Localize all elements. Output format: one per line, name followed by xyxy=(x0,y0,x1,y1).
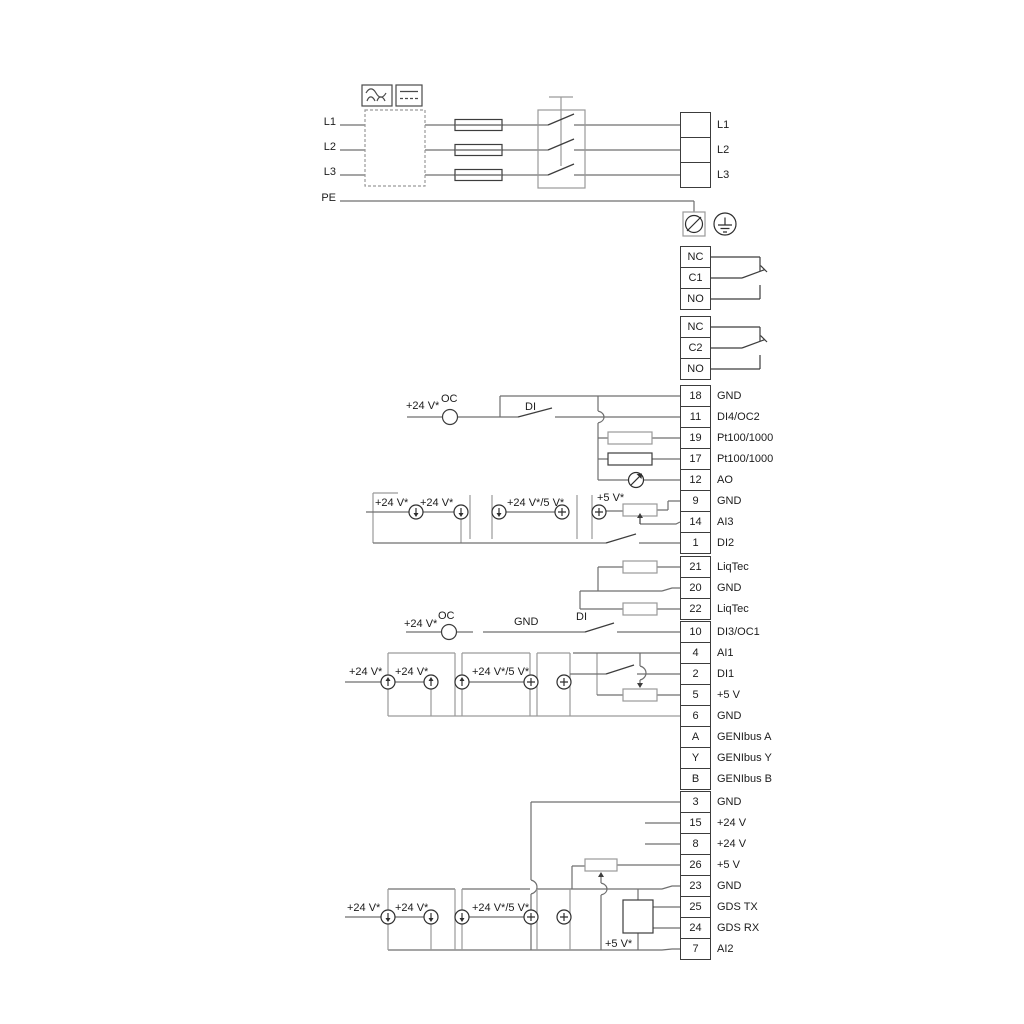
io3-label: AI2 xyxy=(717,943,734,955)
v24-annotation: +24 V* xyxy=(404,618,437,630)
v24-5-annotation: +24 V*/5 V* xyxy=(472,902,529,914)
io1-wiring xyxy=(407,396,680,480)
mains-out-l2-label: L2 xyxy=(717,144,729,156)
v24-annotation: +24 V* xyxy=(406,400,439,412)
terminal-cell: 18 xyxy=(680,385,711,407)
terminal-cell: 22 xyxy=(680,598,711,620)
v24-annotation: +24 V* xyxy=(395,666,428,678)
io3-label: +24 V xyxy=(717,838,746,850)
earth-ground-icon xyxy=(714,213,736,235)
voltage-source-plus-icons-ai1 xyxy=(524,675,571,689)
mains-out-l1-label: L1 xyxy=(717,119,729,131)
pe-screw-terminal xyxy=(683,212,705,236)
io1-label: AI3 xyxy=(717,516,734,528)
io3-label: GDS TX xyxy=(717,901,758,913)
io2-label: GENIbus Y xyxy=(717,752,772,764)
terminal-cell xyxy=(680,137,711,163)
ai3-potentiometer-icon xyxy=(623,504,657,524)
terminal-cell: 23 xyxy=(680,875,711,897)
mains-out-l3-label: L3 xyxy=(717,169,729,181)
terminal-cell: 8 xyxy=(680,833,711,855)
mains-in-l1-label: L1 xyxy=(314,116,336,128)
io1-terminal-block: 18 11 19 17 12 9 14 1 xyxy=(680,385,711,554)
mains-in-pe-label: PE xyxy=(314,192,336,204)
emc-filter-box xyxy=(365,110,425,186)
terminal-cell: 12 xyxy=(680,469,711,491)
v5-annotation: +5 V* xyxy=(597,492,624,504)
terminal-cell: 24 xyxy=(680,917,711,939)
terminal-cell: 15 xyxy=(680,812,711,834)
io3-label: GDS RX xyxy=(717,922,759,934)
v24-5-annotation: +24 V*/5 V* xyxy=(472,666,529,678)
terminal-cell: B xyxy=(680,768,711,790)
v24-annotation: +24 V* xyxy=(347,902,380,914)
io2-terminal-block: 10 4 2 5 6 A Y B xyxy=(680,621,711,790)
io1-label: GND xyxy=(717,495,741,507)
io2-label: DI3/OC1 xyxy=(717,626,760,638)
terminal-cell: 7 xyxy=(680,938,711,960)
wiring-diagram: L1 L2 L3 PE L1 L2 L3 NC C1 NO NC C2 NO 1… xyxy=(0,0,1024,1024)
ai1-potentiometer-icon xyxy=(623,683,657,701)
v5-annotation: +5 V* xyxy=(605,938,632,950)
terminal-cell: NC xyxy=(680,246,711,268)
liqtec-label: GND xyxy=(717,582,741,594)
io1-label: Pt100/1000 xyxy=(717,453,773,465)
io1-label: DI4/OC2 xyxy=(717,411,760,423)
relay2-contact xyxy=(711,327,767,369)
mains-in-l2-label: L2 xyxy=(314,141,336,153)
terminal-cell xyxy=(680,112,711,138)
io2-label: DI1 xyxy=(717,668,734,680)
io1-label: DI2 xyxy=(717,537,734,549)
dc-icon xyxy=(396,85,422,106)
io2-label: +5 V xyxy=(717,689,740,701)
io1-label: GND xyxy=(717,390,741,402)
terminal-cell: Y xyxy=(680,747,711,769)
relay1-terminal-block: NC C1 NO xyxy=(680,246,711,310)
v24-annotation: +24 V* xyxy=(375,497,408,509)
fuse-symbols xyxy=(455,120,502,181)
mains-in-l3-label: L3 xyxy=(314,166,336,178)
io2-label: GND xyxy=(717,710,741,722)
terminal-cell: 25 xyxy=(680,896,711,918)
io3-label: GND xyxy=(717,880,741,892)
terminal-cell: A xyxy=(680,726,711,748)
liqtec-sensor-icons xyxy=(623,561,657,615)
di-annotation: DI xyxy=(576,611,587,623)
terminal-cell: 5 xyxy=(680,684,711,706)
terminal-cell: 11 xyxy=(680,406,711,428)
io3-label: GND xyxy=(717,796,741,808)
diagram-geometry xyxy=(0,0,1024,1024)
io2-label: GENIbus B xyxy=(717,773,772,785)
relay2-terminal-block: NC C2 NO xyxy=(680,316,711,380)
terminal-cell: C2 xyxy=(680,337,711,359)
gds-sensor-box xyxy=(623,900,653,933)
analog-output-meter-icon xyxy=(629,473,644,488)
relay1-contact xyxy=(711,257,767,299)
terminal-cell: 14 xyxy=(680,511,711,533)
terminal-cell: 17 xyxy=(680,448,711,470)
terminal-cell: NC xyxy=(680,316,711,338)
main-switch xyxy=(538,97,585,188)
ai2-cluster xyxy=(388,889,570,950)
liqtec-label: LiqTec xyxy=(717,603,749,615)
oc1-circle-icon xyxy=(442,625,457,640)
ac-icon xyxy=(362,85,392,106)
liqtec-label: LiqTec xyxy=(717,561,749,573)
di-annotation: DI xyxy=(525,401,536,413)
v24-5-annotation: +24 V*/5 V* xyxy=(507,497,564,509)
io3-label: +24 V xyxy=(717,817,746,829)
mains-out-terminal-block xyxy=(680,112,711,188)
pt100-resistor-icons xyxy=(608,432,652,465)
voltage-source-plus-icons-ai2 xyxy=(524,910,571,924)
v24-annotation: +24 V* xyxy=(395,902,428,914)
mains-section xyxy=(340,125,694,212)
ai2-potentiometer-icon xyxy=(585,859,617,877)
terminal-cell: NO xyxy=(680,358,711,380)
terminal-cell: 1 xyxy=(680,532,711,554)
terminal-cell: 21 xyxy=(680,556,711,578)
terminal-cell: 4 xyxy=(680,642,711,664)
liqtec-terminal-block: 21 20 22 xyxy=(680,556,711,620)
terminal-cell: 19 xyxy=(680,427,711,449)
oc-annotation: OC xyxy=(441,393,458,405)
terminal-cell: 2 xyxy=(680,663,711,685)
oc-annotation: OC xyxy=(438,610,455,622)
io2-label: GENIbus A xyxy=(717,731,771,743)
gnd-annotation: GND xyxy=(514,616,538,628)
io1-label: Pt100/1000 xyxy=(717,432,773,444)
terminal-cell: 6 xyxy=(680,705,711,727)
terminal-cell: NO xyxy=(680,288,711,310)
terminal-cell: 9 xyxy=(680,490,711,512)
oc2-circle-icon xyxy=(443,410,458,425)
io3-label: +5 V xyxy=(717,859,740,871)
io2-label: AI1 xyxy=(717,647,734,659)
io1-label: AO xyxy=(717,474,733,486)
terminal-cell: 20 xyxy=(680,577,711,599)
terminal-cell xyxy=(680,162,711,188)
v24-annotation: +24 V* xyxy=(420,497,453,509)
io3-terminal-block: 3 15 8 26 23 25 24 7 xyxy=(680,791,711,960)
io3-wiring xyxy=(388,802,680,950)
terminal-cell: 3 xyxy=(680,791,711,813)
terminal-cell: 10 xyxy=(680,621,711,643)
terminal-cell: 26 xyxy=(680,854,711,876)
v24-annotation: +24 V* xyxy=(349,666,382,678)
terminal-cell: C1 xyxy=(680,267,711,289)
